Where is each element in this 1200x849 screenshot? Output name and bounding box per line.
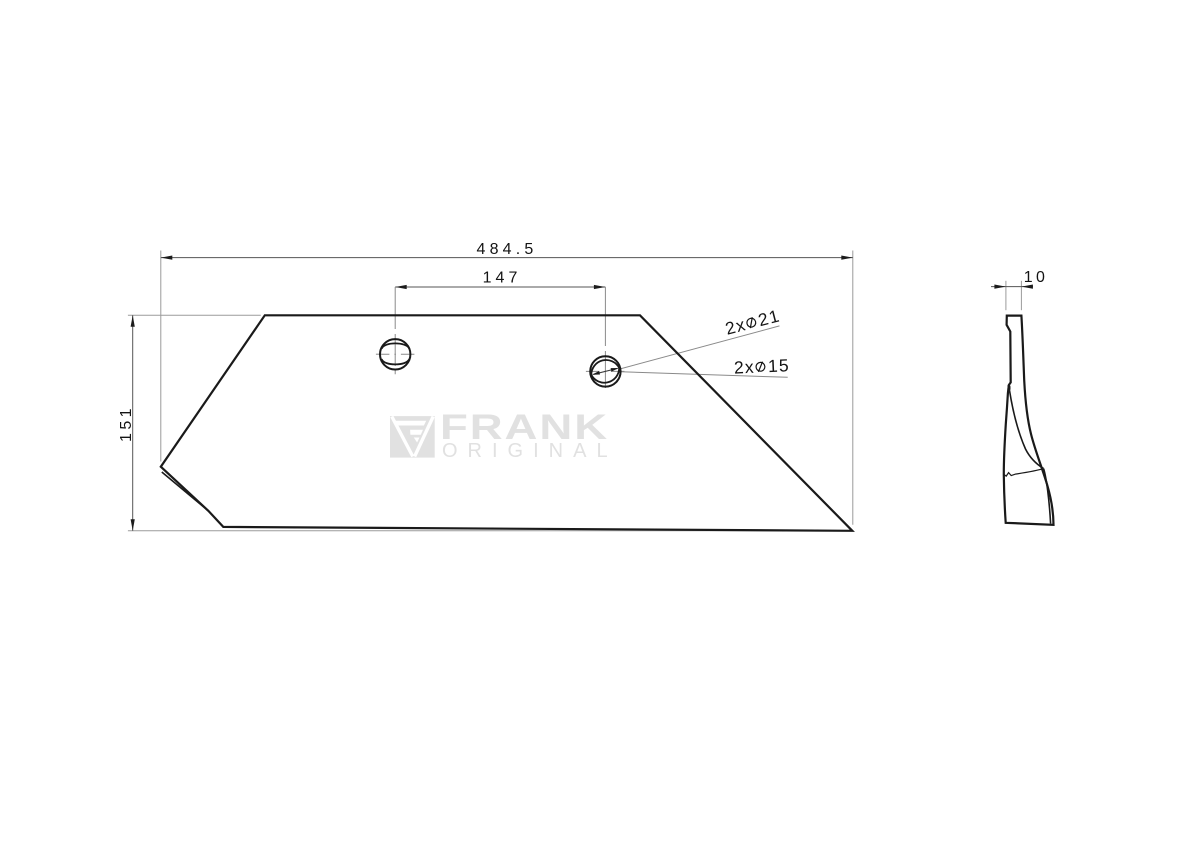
svg-text:2x: 2x <box>734 357 756 378</box>
svg-text:484.5: 484.5 <box>476 241 537 258</box>
svg-text:151: 151 <box>118 405 135 442</box>
svg-text:147: 147 <box>483 270 522 287</box>
svg-text:10: 10 <box>1024 269 1049 286</box>
svg-text:15: 15 <box>768 355 791 376</box>
svg-text:ORIGINAL: ORIGINAL <box>442 440 618 462</box>
